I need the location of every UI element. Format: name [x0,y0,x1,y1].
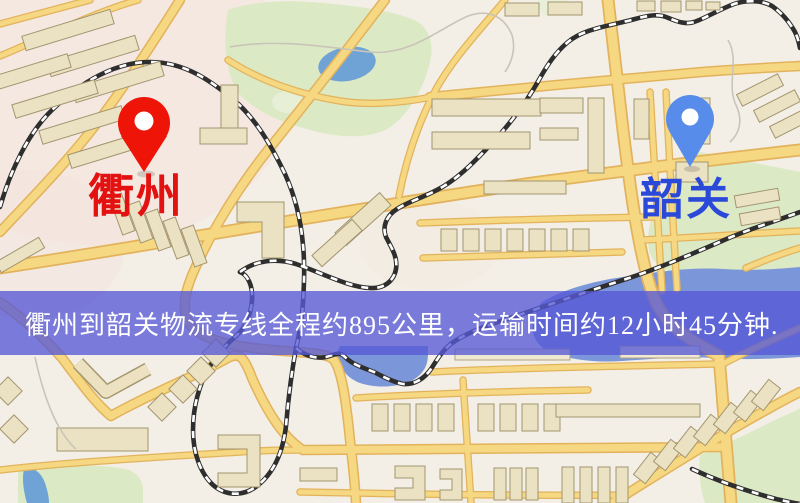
origin-pin-hole [135,112,154,131]
route-info-text: 衢州到韶关物流专线全程约895公里，运输时间约12小时45分钟. [0,305,779,342]
route-info-banner: 衢州到韶关物流专线全程约895公里，运输时间约12小时45分钟. [0,291,800,355]
logistics-route-map[interactable]: 衢州 韶关 衢州到韶关物流专线全程约895公里，运输时间约12小时45分钟. [0,0,800,503]
origin-city-label: 衢州 [88,174,184,220]
destination-city-label: 韶关 [640,178,732,222]
destination-pin-hole [682,109,699,126]
map-artwork [0,0,800,503]
